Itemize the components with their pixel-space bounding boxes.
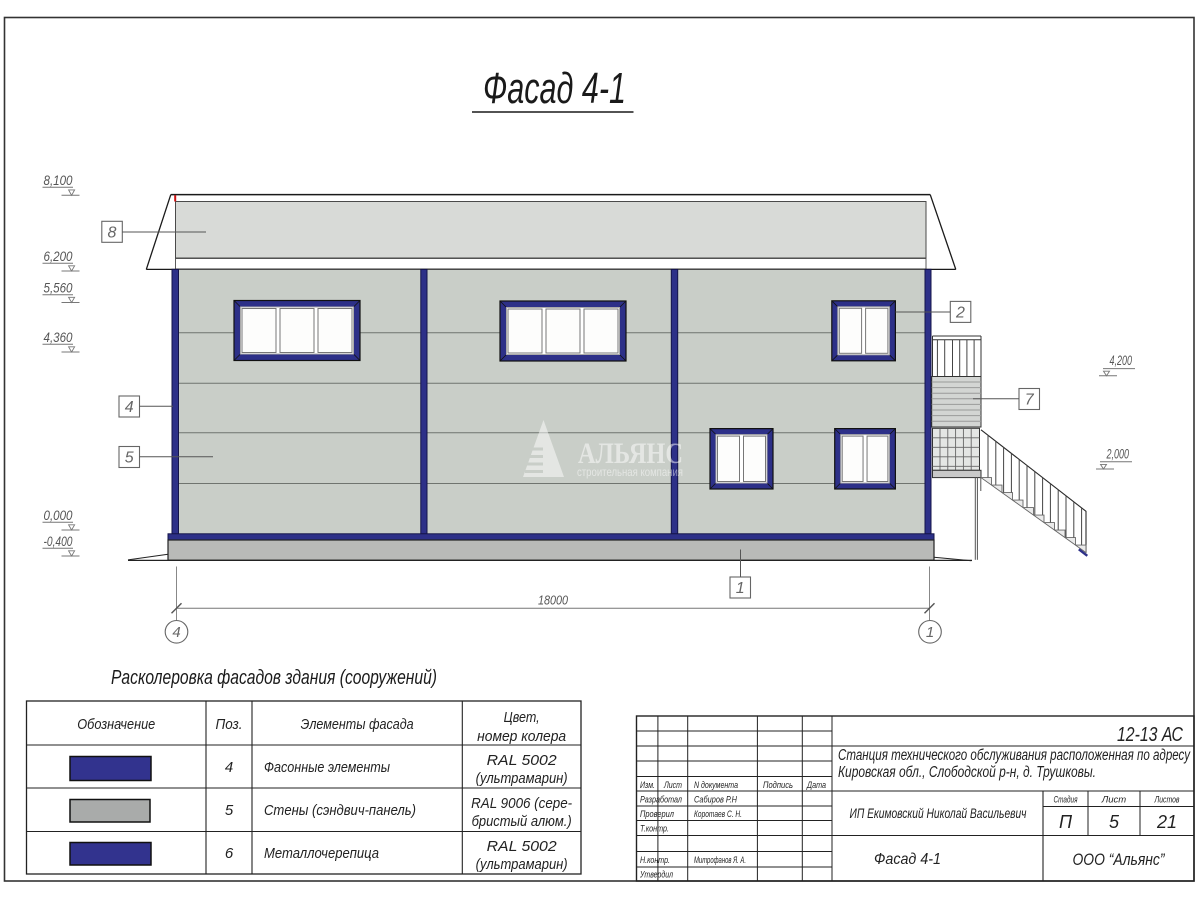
svg-text:Коротаев С. Н.: Коротаев С. Н. (694, 809, 742, 820)
svg-text:Фасад 4-1: Фасад 4-1 (874, 851, 941, 868)
svg-text:Кировская обл., Слободской р-н: Кировская обл., Слободской р-н, д. Трушк… (838, 764, 1096, 781)
svg-text:Сабиров Р.Н: Сабиров Р.Н (694, 795, 737, 806)
svg-text:Фасонные элементы: Фасонные элементы (264, 759, 390, 776)
svg-text:4,360: 4,360 (44, 330, 73, 345)
svg-text:4,200: 4,200 (1110, 353, 1133, 368)
svg-text:ИП Екимовский Николай Васильев: ИП Екимовский Николай Васильевич (850, 805, 1027, 821)
svg-text:4: 4 (172, 624, 180, 641)
svg-text:Лист: Лист (663, 780, 682, 791)
svg-text:1: 1 (736, 580, 745, 597)
svg-text:П: П (1059, 812, 1073, 832)
svg-text:ООО “Альянс”: ООО “Альянс” (1073, 850, 1166, 869)
svg-text:Цвет,: Цвет, (504, 709, 540, 726)
svg-text:6: 6 (225, 845, 234, 862)
svg-text:4: 4 (125, 399, 134, 416)
svg-text:Разработал: Разработал (640, 795, 682, 806)
svg-text:Металлочерепица: Металлочерепица (264, 845, 379, 862)
svg-text:2,000: 2,000 (1106, 447, 1129, 462)
svg-text:8: 8 (108, 225, 117, 242)
svg-text:5: 5 (125, 450, 134, 467)
svg-text:18000: 18000 (538, 593, 569, 608)
svg-text:5: 5 (225, 802, 234, 819)
svg-text:Стены (сэндвич-панель): Стены (сэндвич-панель) (264, 802, 416, 819)
svg-text:Проверил: Проверил (640, 809, 674, 820)
svg-text:21: 21 (1156, 812, 1177, 832)
svg-text:Элементы фасада: Элементы фасада (301, 716, 414, 733)
svg-text:5: 5 (1109, 812, 1120, 832)
svg-text:Утвердил: Утвердил (639, 870, 673, 881)
svg-text:Митрофанов Я. А.: Митрофанов Я. А. (694, 855, 746, 866)
svg-text:Дата: Дата (806, 780, 826, 791)
svg-text:Фасад 4-1: Фасад 4-1 (483, 64, 626, 113)
svg-text:строительная компания: строительная компания (577, 465, 683, 479)
svg-text:RAL 9006 (сере-: RAL 9006 (сере- (471, 795, 572, 812)
svg-text:Обозначение: Обозначение (77, 716, 155, 733)
svg-text:Станция технического обслужива: Станция технического обслуживания распол… (838, 747, 1191, 764)
svg-text:Т.контр.: Т.контр. (640, 824, 669, 835)
svg-text:0,000: 0,000 (44, 508, 73, 523)
svg-text:Стадия: Стадия (1054, 795, 1078, 806)
svg-text:12-13 АС: 12-13 АС (1117, 724, 1183, 746)
svg-text:Поз.: Поз. (216, 716, 243, 733)
svg-text:номер колера: номер колера (477, 728, 566, 745)
svg-text:Листов: Листов (1154, 795, 1180, 806)
svg-text:Н.контр.: Н.контр. (640, 855, 670, 866)
svg-text:Подпись: Подпись (763, 780, 793, 791)
svg-text:Лист: Лист (1101, 795, 1127, 806)
svg-text:RAL 5002: RAL 5002 (487, 752, 558, 769)
svg-text:6,200: 6,200 (44, 249, 73, 264)
svg-text:бристый алюм.): бристый алюм.) (472, 813, 572, 830)
svg-text:(ультрамарин): (ультрамарин) (476, 770, 568, 787)
svg-text:7: 7 (1025, 392, 1035, 409)
svg-text:RAL 5002: RAL 5002 (487, 838, 558, 855)
svg-text:2: 2 (955, 305, 965, 322)
svg-text:-0,400: -0,400 (44, 534, 73, 549)
svg-text:Изм.: Изм. (640, 780, 655, 791)
svg-text:5,560: 5,560 (44, 281, 73, 296)
svg-text:Расколеровка фасадов здания (с: Расколеровка фасадов здания (сооружений) (111, 667, 437, 689)
svg-text:(ультрамарин): (ультрамарин) (476, 856, 568, 873)
svg-text:1: 1 (926, 624, 934, 641)
svg-text:N документа: N документа (694, 780, 738, 791)
svg-text:8,100: 8,100 (44, 173, 73, 188)
svg-text:4: 4 (225, 759, 233, 776)
